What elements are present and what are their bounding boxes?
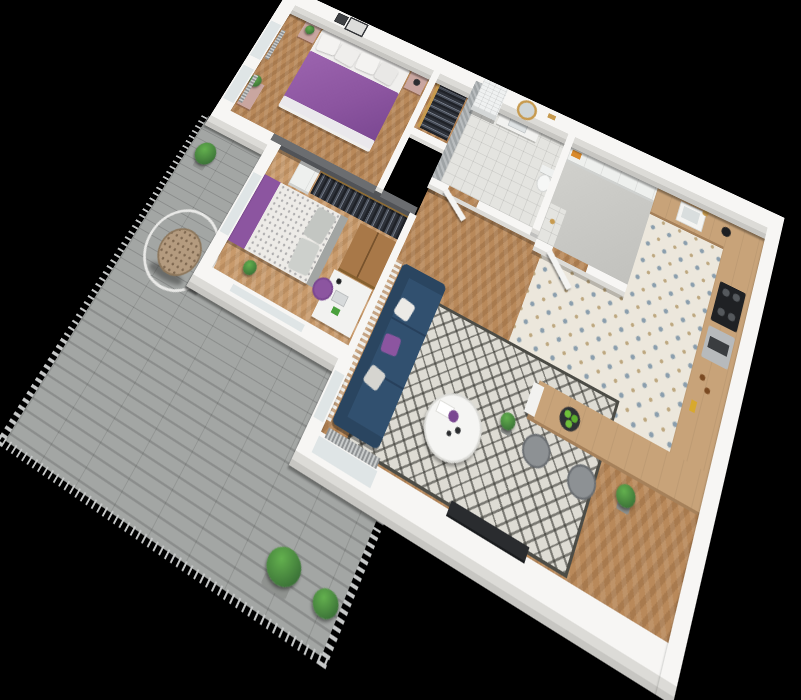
apartment-plan: [0, 0, 796, 700]
apartment-3d-floorplan-render: { "scene": { "type": "isometric-3d-floor…: [0, 0, 801, 700]
render-stage: [58, 12, 778, 632]
